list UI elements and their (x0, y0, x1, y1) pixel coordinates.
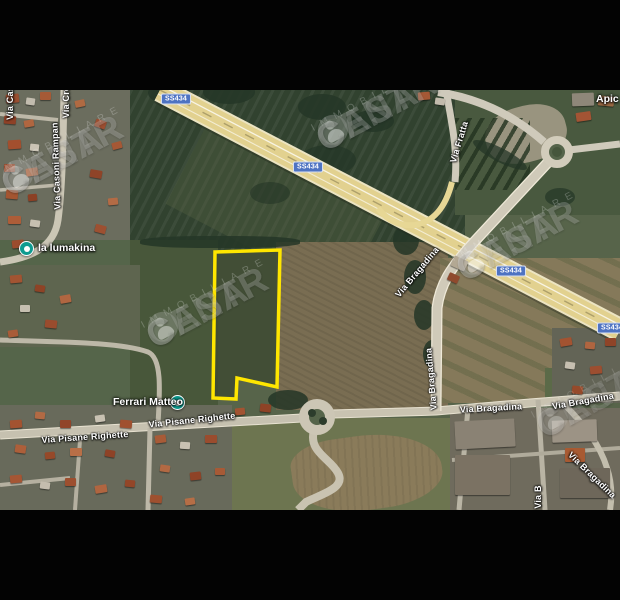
building (70, 448, 82, 456)
building (20, 305, 30, 312)
building (30, 219, 41, 227)
building (28, 194, 38, 202)
route-shield-ss434: SS434 (597, 323, 620, 334)
poi-marker-lumakina[interactable] (19, 241, 34, 256)
building (605, 338, 616, 346)
building (155, 434, 167, 443)
building (60, 420, 71, 428)
building (10, 420, 23, 429)
satellite-map[interactable]: CENTRCASA IMMOBILIARE CENTRCASA IMMOBILI… (0, 90, 620, 510)
building (455, 455, 510, 495)
letterbox-top (0, 0, 620, 90)
building (45, 319, 58, 328)
building (14, 444, 26, 453)
building (45, 451, 56, 459)
building (35, 284, 46, 292)
building (185, 497, 196, 505)
building (552, 419, 598, 443)
building (235, 408, 246, 416)
building (8, 216, 21, 224)
building (435, 97, 446, 105)
building (26, 97, 36, 105)
building (108, 198, 119, 206)
building (10, 474, 23, 483)
building (6, 189, 19, 199)
building (30, 144, 40, 152)
building (95, 414, 106, 422)
building (26, 167, 39, 177)
letterbox-bottom (0, 510, 620, 600)
building (572, 385, 584, 394)
building (4, 164, 15, 172)
building (150, 494, 163, 503)
building (590, 365, 603, 374)
roads-layer (0, 90, 620, 510)
place-label-apic-partial: Apic (596, 93, 619, 105)
road-label-bragadina-partial: Via B (533, 485, 543, 508)
building (215, 468, 225, 475)
building (8, 140, 22, 150)
building (572, 93, 594, 107)
building (180, 442, 190, 450)
building (160, 464, 171, 472)
building (8, 329, 19, 337)
building (190, 471, 202, 480)
route-shield-ss434: SS434 (161, 94, 191, 105)
road-label-cas-partial: Via Cas (5, 90, 15, 120)
building (454, 418, 515, 449)
place-label-lumakina[interactable]: la lumakina (38, 242, 95, 254)
place-label-ferrari-matteo[interactable]: Ferrari Matteo (113, 396, 183, 408)
building (125, 480, 136, 488)
building (40, 481, 51, 489)
building (418, 91, 431, 100)
route-shield-ss434: SS434 (496, 266, 526, 277)
road-label-cre-partial: Via Cre (61, 90, 71, 118)
building (10, 274, 23, 283)
building (205, 435, 217, 443)
route-shield-ss434: SS434 (293, 162, 323, 173)
building (565, 361, 576, 369)
building (120, 419, 133, 428)
building (40, 92, 51, 100)
building (35, 411, 46, 419)
building (585, 342, 596, 350)
building (104, 449, 115, 458)
parcel-outline (213, 250, 280, 399)
building (65, 478, 76, 486)
building (260, 403, 272, 412)
